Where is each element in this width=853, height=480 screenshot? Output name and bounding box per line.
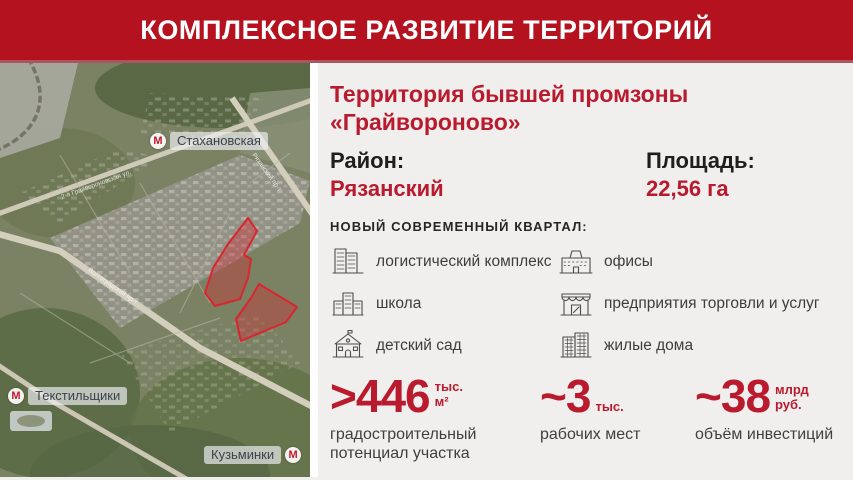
stat-unit-line: м² xyxy=(435,395,463,410)
feature-label: школа xyxy=(376,295,421,312)
territory-title: Территория бывшей промзоны «Грайвороново… xyxy=(330,80,760,136)
district-area-row: Район: Рязанский Площадь: 22,56 га xyxy=(330,149,837,200)
stat-units: тыс. м² xyxy=(435,375,463,417)
district-label: Район: xyxy=(330,149,646,172)
feature-label: детский сад xyxy=(376,337,462,354)
metro-logo-icon: М xyxy=(150,133,166,149)
satellite-map: 2-я Грайвороновская ул. Волгоградский пр… xyxy=(0,63,310,477)
stat-units: тыс. xyxy=(595,375,623,417)
area-label: Площадь: xyxy=(646,149,755,172)
feature-label: офисы xyxy=(604,253,653,270)
stat-value: ~38 xyxy=(695,375,770,417)
area-value: 22,56 га xyxy=(646,177,755,200)
metro-station-kuzminki: Кузьминки М xyxy=(204,446,301,464)
school-building-icon xyxy=(330,286,366,320)
stat-unit-line: тыс. xyxy=(435,380,463,395)
stat-units: млрд руб. xyxy=(775,375,809,417)
feature-retail: предприятия торговли и услуг xyxy=(558,286,837,320)
key-stats-row: >446 тыс. м² градостроительный потенциал… xyxy=(330,375,837,463)
stat-value: >446 xyxy=(330,375,430,417)
metro-logo-icon: М xyxy=(8,388,24,404)
feature-label: логистический комплекс xyxy=(376,253,552,270)
metro-station-tekstilshchiki: М Текстильщики xyxy=(8,387,127,405)
station-label: Кузьминки xyxy=(204,446,281,464)
stat-unit-line: млрд xyxy=(775,383,809,398)
stat-value: ~3 xyxy=(540,375,590,417)
feature-school: школа xyxy=(330,286,558,320)
info-panel: Территория бывшей промзоны «Грайвороново… xyxy=(318,63,853,477)
stat-caption: рабочих мест xyxy=(540,425,695,445)
map-artwork: 2-я Грайвороновская ул. Волгоградский пр… xyxy=(0,63,310,477)
stat-building-potential: >446 тыс. м² градостроительный потенциал… xyxy=(330,375,540,463)
map-panel-divider xyxy=(310,63,318,477)
area-block: Площадь: 22,56 га xyxy=(646,149,755,200)
station-label: Текстильщики xyxy=(28,387,127,405)
feature-kindergarten: детский сад xyxy=(330,328,558,362)
stat-jobs: ~3 тыс. рабочих мест xyxy=(540,375,695,463)
district-block: Район: Рязанский xyxy=(330,149,646,200)
residential-towers-icon xyxy=(558,328,594,362)
metro-station-stakhanovskaya: М Стахановская xyxy=(150,132,268,150)
station-label: Стахановская xyxy=(170,132,268,150)
feature-residential: жилые дома xyxy=(558,328,837,362)
page-title: КОМПЛЕКСНОЕ РАЗВИТИЕ ТЕРРИТОРИЙ xyxy=(140,15,713,46)
slide: КОМПЛЕКСНОЕ РАЗВИТИЕ ТЕРРИТОРИЙ xyxy=(0,0,853,480)
stat-caption: градостроительный потенциал участка xyxy=(330,425,530,464)
stat-unit-line: руб. xyxy=(775,398,809,413)
feature-logistics: логистический комплекс xyxy=(330,244,558,278)
stat-investment: ~38 млрд руб. объём инвестиций xyxy=(695,375,837,463)
logistics-building-icon xyxy=(330,244,366,278)
district-value: Рязанский xyxy=(330,177,646,200)
stat-caption: объём инвестиций xyxy=(695,425,837,445)
feature-label: предприятия торговли и услуг xyxy=(604,295,820,312)
retail-store-icon xyxy=(558,286,594,320)
kindergarten-building-icon xyxy=(330,328,366,362)
office-building-icon xyxy=(558,244,594,278)
stat-unit-line: тыс. xyxy=(595,400,623,415)
feature-label: жилые дома xyxy=(604,337,693,354)
metro-logo-icon: М xyxy=(285,447,301,463)
feature-offices: офисы xyxy=(558,244,837,278)
features-grid: логистический комплекс офисы xyxy=(330,240,837,366)
section-title: НОВЫЙ СОВРЕМЕННЫЙ КВАРТАЛ: xyxy=(330,219,837,234)
header-banner: КОМПЛЕКСНОЕ РАЗВИТИЕ ТЕРРИТОРИЙ xyxy=(0,0,853,63)
